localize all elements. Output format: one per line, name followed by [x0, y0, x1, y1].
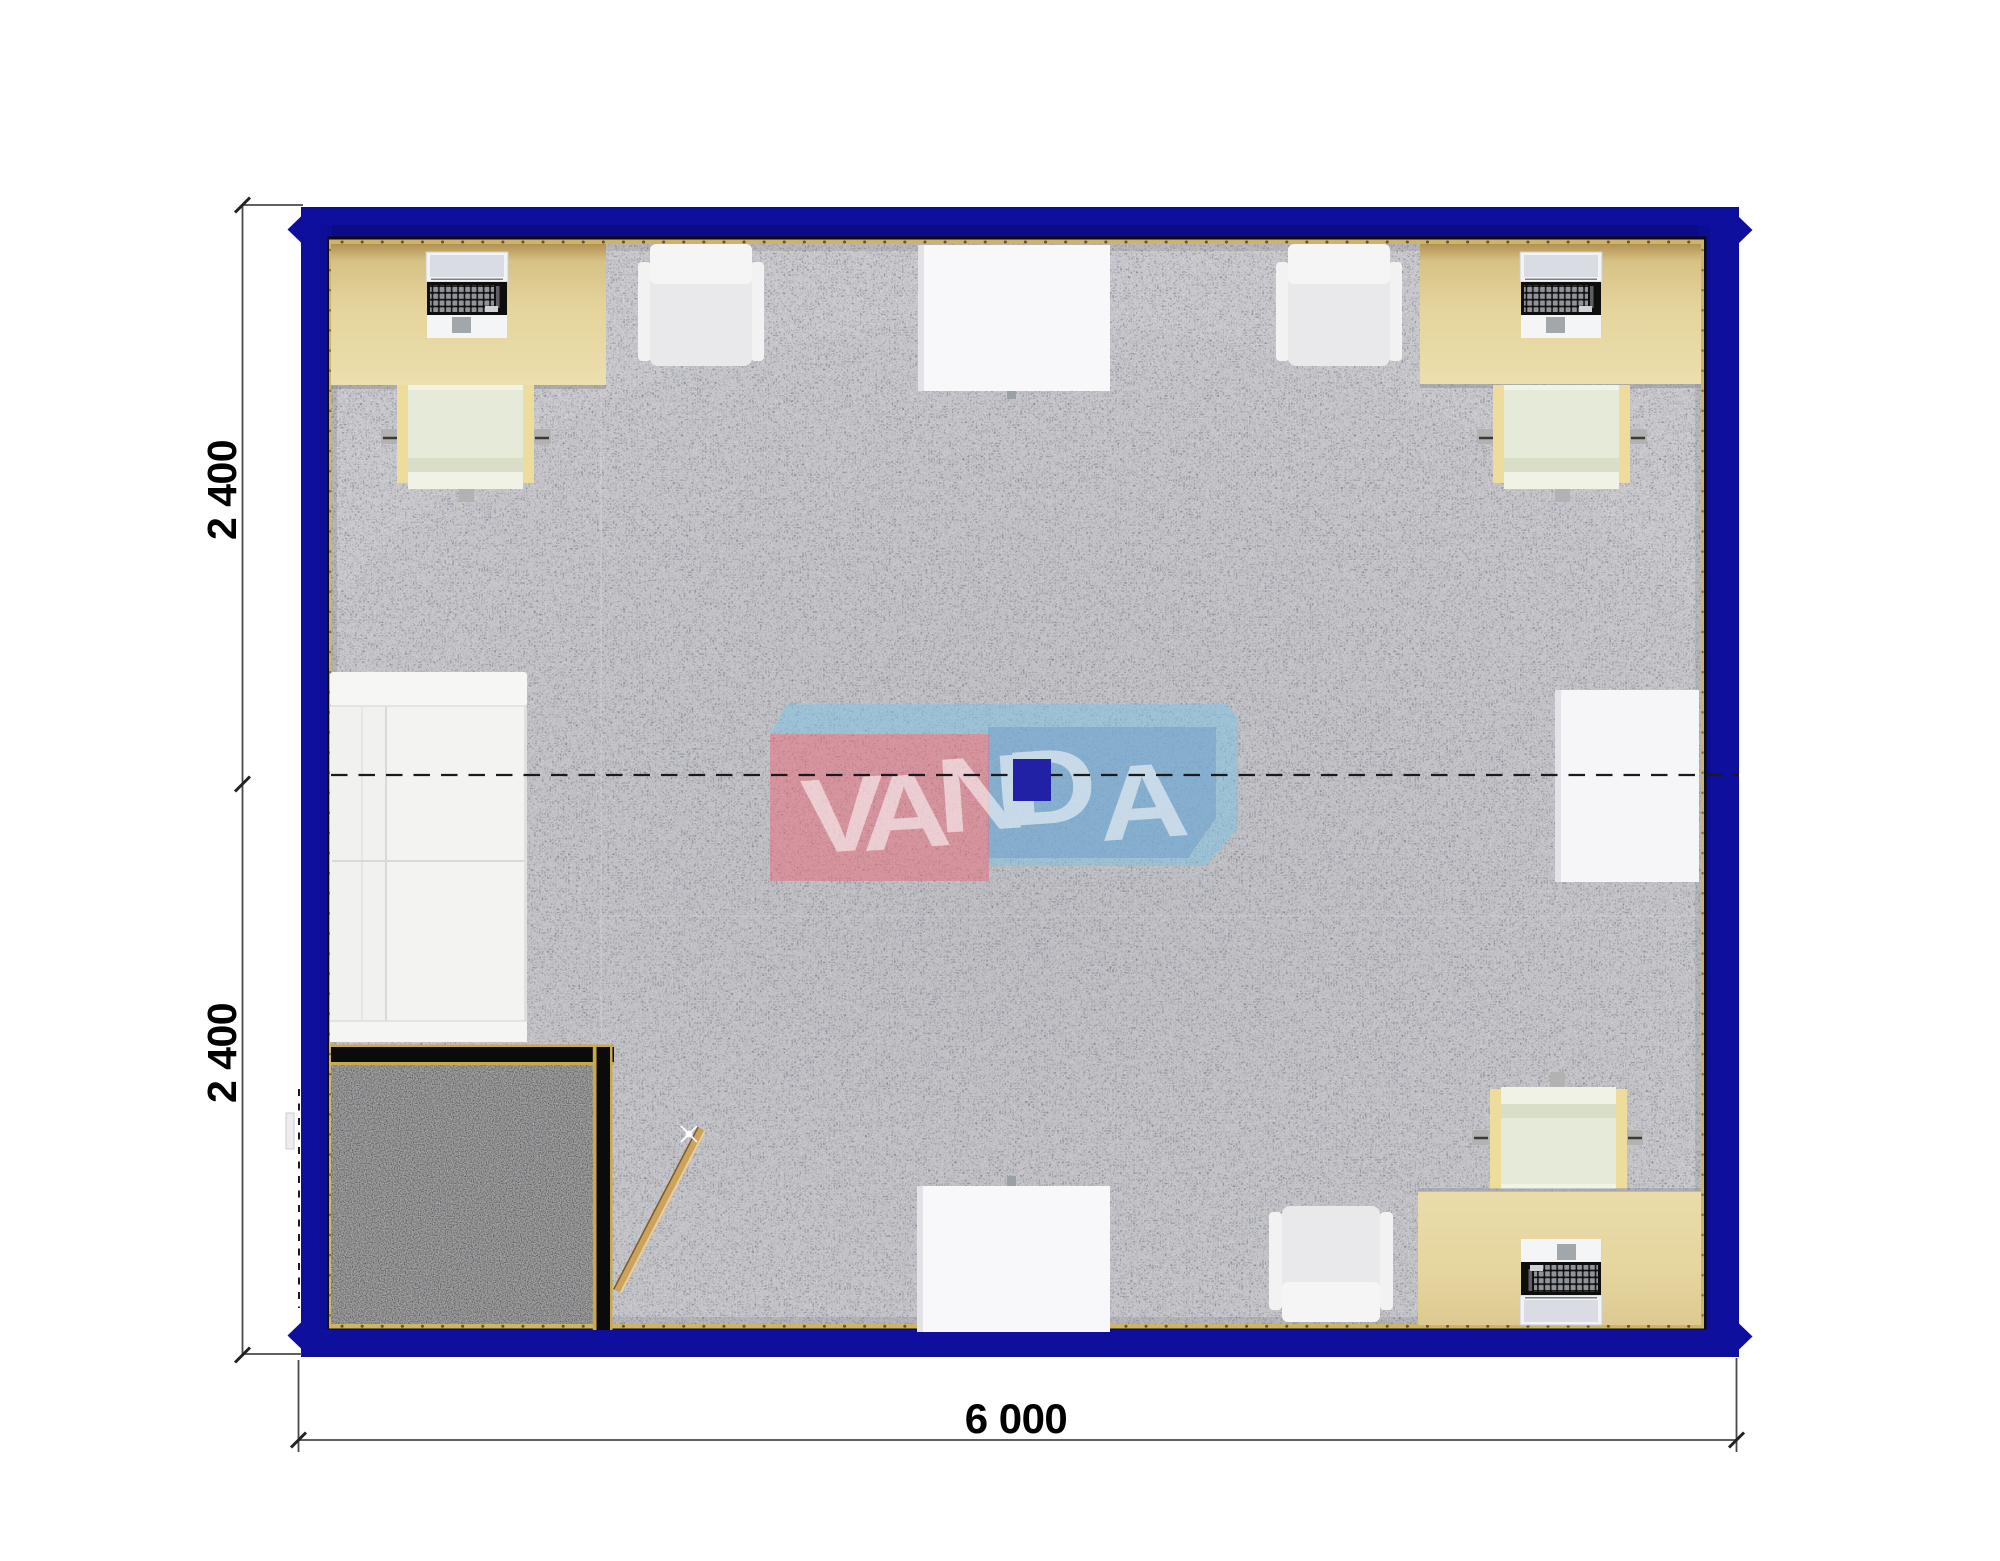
svg-text:2 400: 2 400 — [199, 440, 245, 540]
svg-text:2 400: 2 400 — [199, 1003, 245, 1103]
svg-text:A: A — [1094, 739, 1192, 864]
svg-text:6 000: 6 000 — [965, 1395, 1068, 1442]
